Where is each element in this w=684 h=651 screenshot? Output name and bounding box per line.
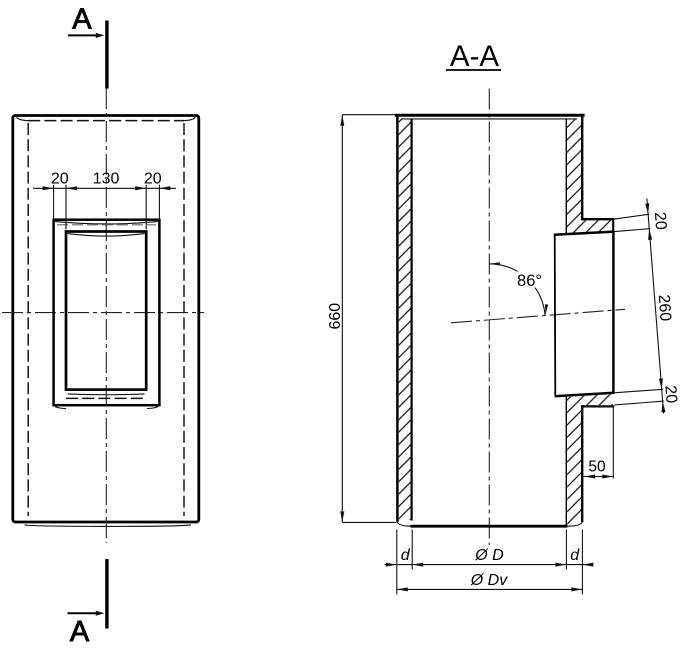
svg-text:20: 20 [144, 171, 162, 188]
svg-text:20: 20 [51, 171, 69, 188]
svg-text:Ø Dv: Ø Dv [470, 572, 508, 589]
svg-text:130: 130 [93, 171, 120, 188]
svg-text:260: 260 [655, 294, 674, 322]
svg-text:660: 660 [327, 303, 344, 330]
svg-text:d: d [570, 547, 580, 564]
svg-text:Ø D: Ø D [474, 547, 504, 564]
svg-text:20: 20 [651, 212, 669, 231]
svg-text:20: 20 [661, 385, 679, 404]
svg-text:A: A [70, 616, 90, 648]
svg-text:50: 50 [588, 459, 606, 476]
svg-text:86°: 86° [517, 272, 542, 290]
svg-text:d: d [401, 547, 411, 564]
svg-text:A-A: A-A [450, 40, 500, 73]
svg-text:A: A [72, 3, 92, 35]
